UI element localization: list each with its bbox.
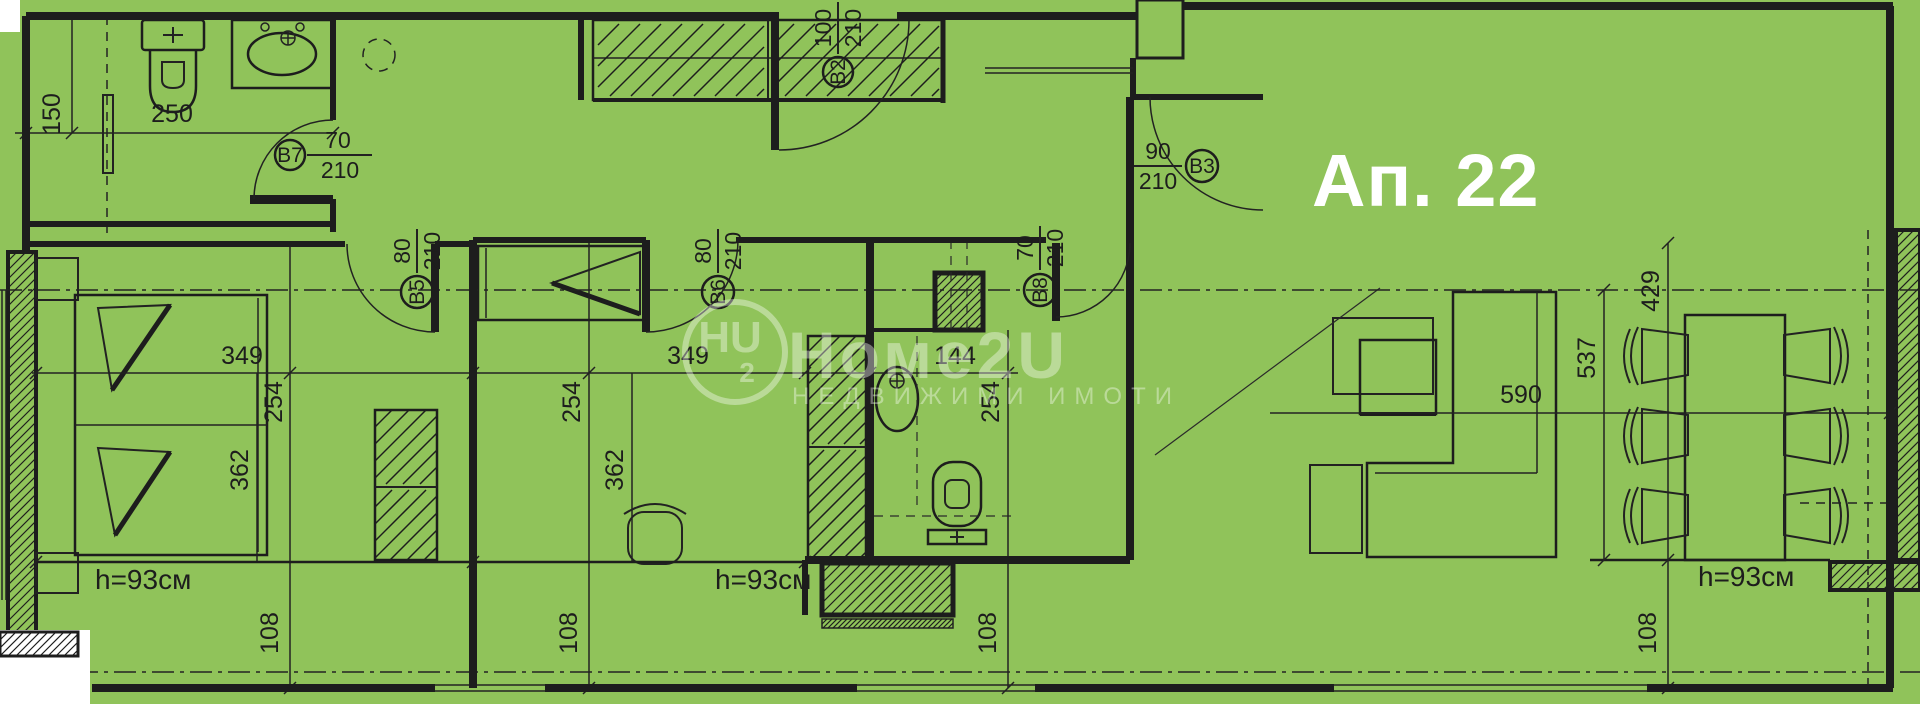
dim-108-4: 108 xyxy=(1634,612,1662,654)
door-height: 210 xyxy=(1042,229,1068,267)
dim-108-2: 108 xyxy=(555,612,583,654)
door-tag-label: B3 xyxy=(1189,155,1215,178)
apartment-title: Ап. 22 xyxy=(1312,139,1540,222)
door-height: 210 xyxy=(840,9,866,47)
door-leaf xyxy=(642,240,650,332)
dim-254-bed1: 254 xyxy=(260,381,288,423)
dim-537: 537 xyxy=(1573,337,1601,379)
door-tag: B2 xyxy=(823,57,853,87)
door-tag: B8 xyxy=(1024,274,1056,306)
dim-362-bed1: 362 xyxy=(226,449,254,491)
door-height: 210 xyxy=(720,232,746,270)
door-size-fraction: 100 210 xyxy=(810,2,866,54)
sill-height-right: h=93см xyxy=(1698,561,1794,592)
door-width: 90 xyxy=(1145,138,1171,164)
watermark-brand: Номе2U xyxy=(788,318,1069,392)
dim-254-bed2: 254 xyxy=(558,381,586,423)
outside-corner xyxy=(0,0,20,32)
door-width: 70 xyxy=(325,127,351,153)
dim-250: 250 xyxy=(151,100,193,128)
door-width: 80 xyxy=(389,238,415,264)
door-tag-label: B2 xyxy=(827,59,850,85)
door-tag-label: B5 xyxy=(406,279,429,305)
dim-108-3: 108 xyxy=(974,612,1002,654)
dim-590: 590 xyxy=(1500,381,1542,409)
sill-height-mid: h=93см xyxy=(715,564,811,595)
door-tag-label: B7 xyxy=(277,144,303,167)
door-height: 210 xyxy=(1139,168,1177,194)
watermark-tagline: НЕДВИЖИМИ ИМОТИ xyxy=(792,383,1181,410)
door-leaf xyxy=(250,195,333,204)
door-tag: B5 xyxy=(401,276,433,308)
dim-362-bed2: 362 xyxy=(601,449,629,491)
watermark-logo-sub: 2 xyxy=(739,357,755,388)
dim-349-bed1: 349 xyxy=(221,342,263,370)
door-leaf xyxy=(771,20,779,150)
door-width: 70 xyxy=(1012,235,1038,261)
door-height: 210 xyxy=(321,157,359,183)
dim-108-1: 108 xyxy=(256,612,284,654)
dim-429: 429 xyxy=(1637,270,1665,312)
door-height: 210 xyxy=(419,232,445,270)
watermark-logo-main: HU xyxy=(698,313,762,362)
door-width: 80 xyxy=(690,238,716,264)
door-tag-label: B8 xyxy=(1029,277,1052,303)
sill-height-left: h=93см xyxy=(95,564,191,595)
dim-150: 150 xyxy=(38,93,66,135)
door-width: 100 xyxy=(810,9,836,47)
floor-plan-canvas: B7 70 210 100 210 B2 90 210 B3 80 210 xyxy=(0,0,1920,704)
